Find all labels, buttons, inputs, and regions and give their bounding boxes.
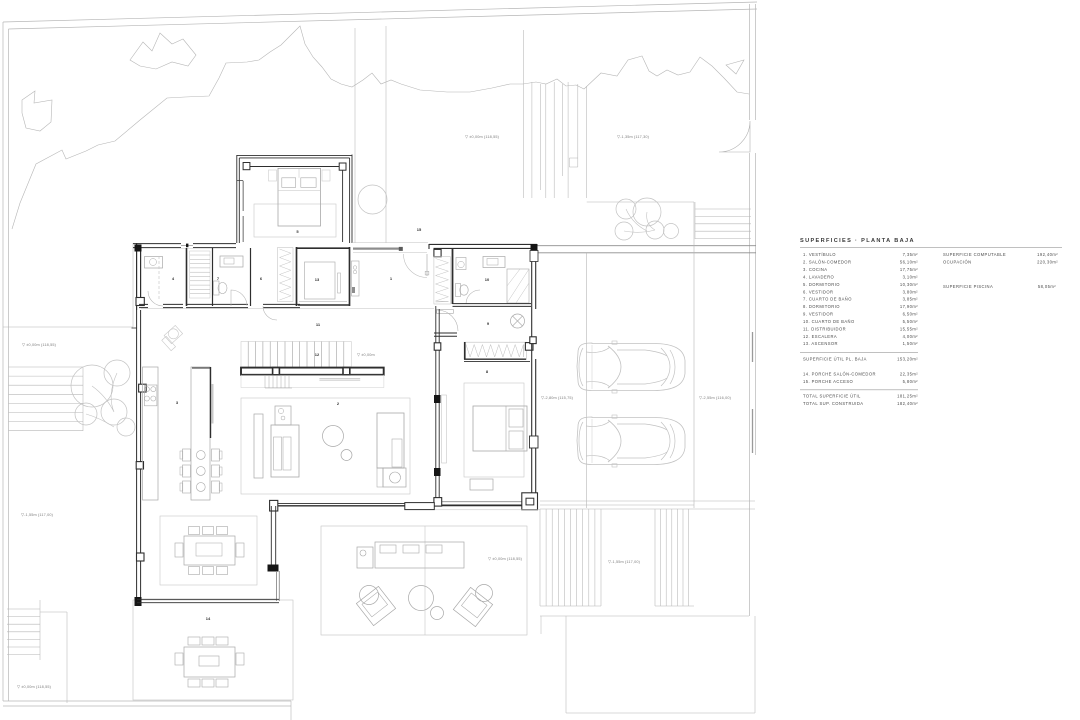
- svg-text:TOTAL SUPERFICIE ÚTIL: TOTAL SUPERFICIE ÚTIL: [803, 394, 861, 399]
- svg-text:15. PORCHE ACCESO: 15. PORCHE ACCESO: [803, 379, 854, 384]
- svg-text:56,10m²: 56,10m²: [900, 260, 918, 265]
- svg-text:TOTAL SUP. CONSTRUIDA: TOTAL SUP. CONSTRUIDA: [803, 401, 863, 406]
- svg-text:3,10m²: 3,10m²: [903, 274, 919, 279]
- svg-text:▽-1,35m (117,30): ▽-1,35m (117,30): [617, 135, 650, 139]
- svg-text:▽ ±0,00m (118,55): ▽ ±0,00m (118,55): [465, 135, 500, 139]
- svg-text:7,35m²: 7,35m²: [903, 252, 919, 257]
- svg-text:153,20m²: 153,20m²: [897, 357, 918, 362]
- svg-text:▽-1,55m (117,00): ▽-1,55m (117,00): [608, 560, 641, 564]
- svg-text:SUPERFICIE PISCINA: SUPERFICIE PISCINA: [943, 284, 993, 289]
- svg-text:10: 10: [485, 277, 490, 282]
- svg-text:17,90m²: 17,90m²: [900, 304, 918, 309]
- svg-text:▽-2,80m (115,75): ▽-2,80m (115,75): [541, 396, 574, 400]
- svg-text:13. ASCENSOR: 13. ASCENSOR: [803, 341, 838, 346]
- svg-text:3. COCINA: 3. COCINA: [803, 267, 828, 272]
- svg-text:58,05m²: 58,05m²: [1038, 284, 1056, 289]
- svg-text:▽ ±0,00m (118,55): ▽ ±0,00m (118,55): [22, 343, 57, 347]
- svg-text:9. VESTIDOR: 9. VESTIDOR: [803, 312, 833, 317]
- svg-text:5. DORMITORIO: 5. DORMITORIO: [803, 282, 840, 287]
- svg-text:182,40m²: 182,40m²: [897, 401, 918, 406]
- svg-text:15: 15: [417, 227, 422, 232]
- svg-text:13: 13: [315, 277, 320, 282]
- svg-text:4,00m²: 4,00m²: [903, 334, 919, 339]
- svg-text:12: 12: [315, 352, 320, 357]
- svg-text:SUPERFICIES · PLANTA BAJA: SUPERFICIES · PLANTA BAJA: [800, 238, 915, 244]
- svg-text:5,50m²: 5,50m²: [903, 319, 919, 324]
- svg-text:10. CUARTO DE BAÑO: 10. CUARTO DE BAÑO: [803, 319, 855, 324]
- svg-text:6,50m²: 6,50m²: [903, 312, 919, 317]
- svg-text:8. DORMITORIO: 8. DORMITORIO: [803, 304, 840, 309]
- svg-text:220,30m²: 220,30m²: [1037, 260, 1058, 265]
- svg-text:5,80m²: 5,80m²: [903, 379, 919, 384]
- svg-text:▽-2,55m (116,00): ▽-2,55m (116,00): [699, 396, 732, 400]
- svg-text:2. SALÓN-COMEDOR: 2. SALÓN-COMEDOR: [803, 260, 851, 265]
- svg-text:12. ESCALERA: 12. ESCALERA: [803, 334, 837, 339]
- svg-text:11. DISTRIBUIDOR: 11. DISTRIBUIDOR: [803, 326, 846, 331]
- svg-text:181,25m²: 181,25m²: [897, 394, 918, 399]
- svg-text:OCUPACIÓN: OCUPACIÓN: [943, 260, 972, 265]
- svg-text:SUPERFICIE COMPUTABLE: SUPERFICIE COMPUTABLE: [943, 252, 1006, 257]
- svg-text:▽ ±0,00m (118,55): ▽ ±0,00m (118,55): [488, 557, 523, 561]
- svg-text:3,85m²: 3,85m²: [903, 297, 919, 302]
- svg-text:4. LAVADERO: 4. LAVADERO: [803, 274, 835, 279]
- svg-text:14: 14: [206, 616, 211, 621]
- svg-text:15,55m²: 15,55m²: [900, 326, 918, 331]
- svg-text:1. VESTÍBULO: 1. VESTÍBULO: [803, 252, 836, 257]
- svg-text:10,30m²: 10,30m²: [900, 282, 918, 287]
- svg-text:6. VESTIDOR: 6. VESTIDOR: [803, 289, 833, 294]
- svg-text:1,50m²: 1,50m²: [903, 341, 919, 346]
- svg-text:192,40m²: 192,40m²: [1037, 252, 1058, 257]
- svg-text:7. CUARTO DE BAÑO: 7. CUARTO DE BAÑO: [803, 297, 852, 302]
- svg-text:▽ ±0,00m (118,55): ▽ ±0,00m (118,55): [17, 685, 52, 689]
- svg-text:14. PORCHE SALÓN-COMEDOR: 14. PORCHE SALÓN-COMEDOR: [803, 371, 876, 376]
- svg-text:▽ ±0,00m: ▽ ±0,00m: [357, 353, 375, 357]
- svg-text:17,75m²: 17,75m²: [900, 267, 918, 272]
- svg-text:22,35m²: 22,35m²: [900, 371, 918, 376]
- svg-text:▽-1,55m (117,00): ▽-1,55m (117,00): [21, 513, 54, 517]
- svg-text:3,80m²: 3,80m²: [903, 289, 919, 294]
- svg-text:SUPERFICIE ÚTIL PL. BAJA: SUPERFICIE ÚTIL PL. BAJA: [803, 357, 867, 362]
